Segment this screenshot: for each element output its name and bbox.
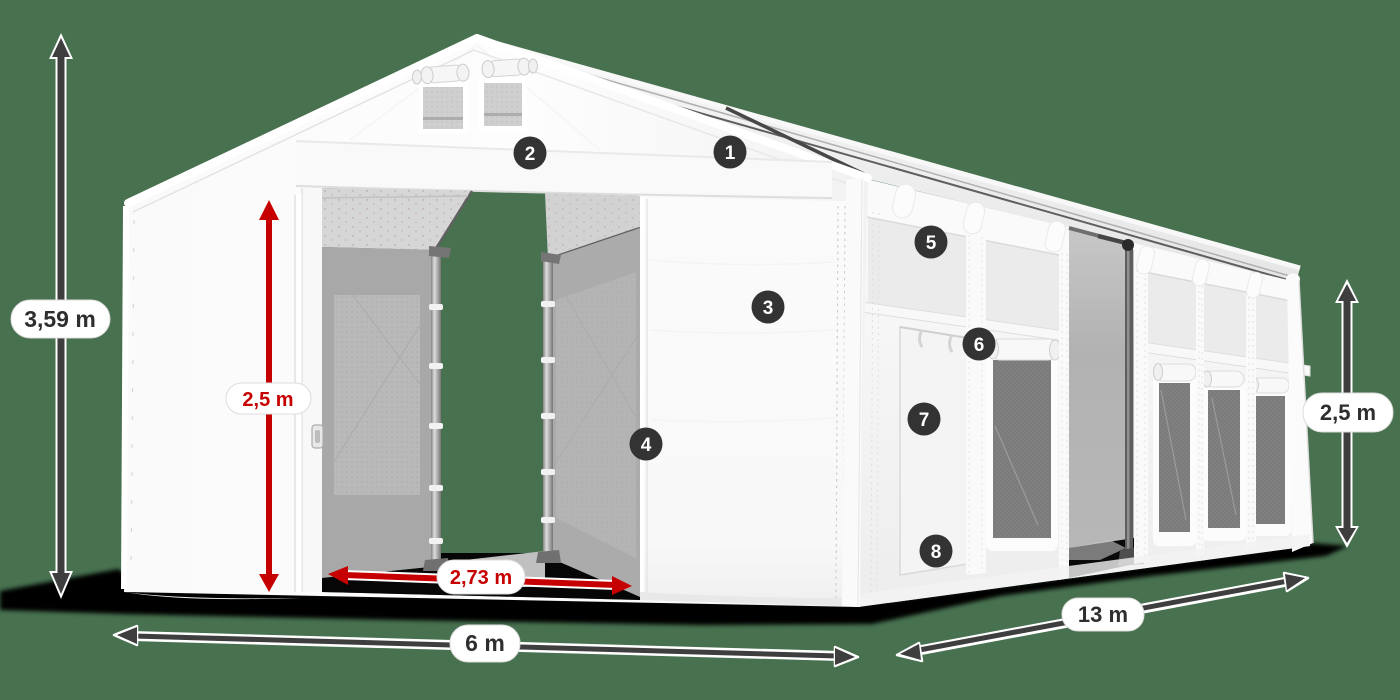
svg-text:2,5 m: 2,5 m (1320, 400, 1376, 425)
svg-text:8: 8 (931, 542, 942, 563)
svg-text:1: 1 (725, 143, 736, 164)
svg-text:13 m: 13 m (1078, 602, 1128, 627)
svg-text:3: 3 (763, 298, 774, 319)
svg-text:6: 6 (974, 335, 985, 356)
svg-text:6 m: 6 m (465, 630, 505, 656)
svg-text:4: 4 (641, 435, 652, 456)
svg-text:5: 5 (926, 233, 937, 254)
svg-text:2: 2 (525, 144, 536, 165)
svg-text:3,59 m: 3,59 m (24, 306, 96, 332)
svg-text:2,73 m: 2,73 m (450, 567, 512, 589)
svg-text:7: 7 (919, 410, 930, 431)
svg-text:2,5 m: 2,5 m (242, 389, 293, 411)
